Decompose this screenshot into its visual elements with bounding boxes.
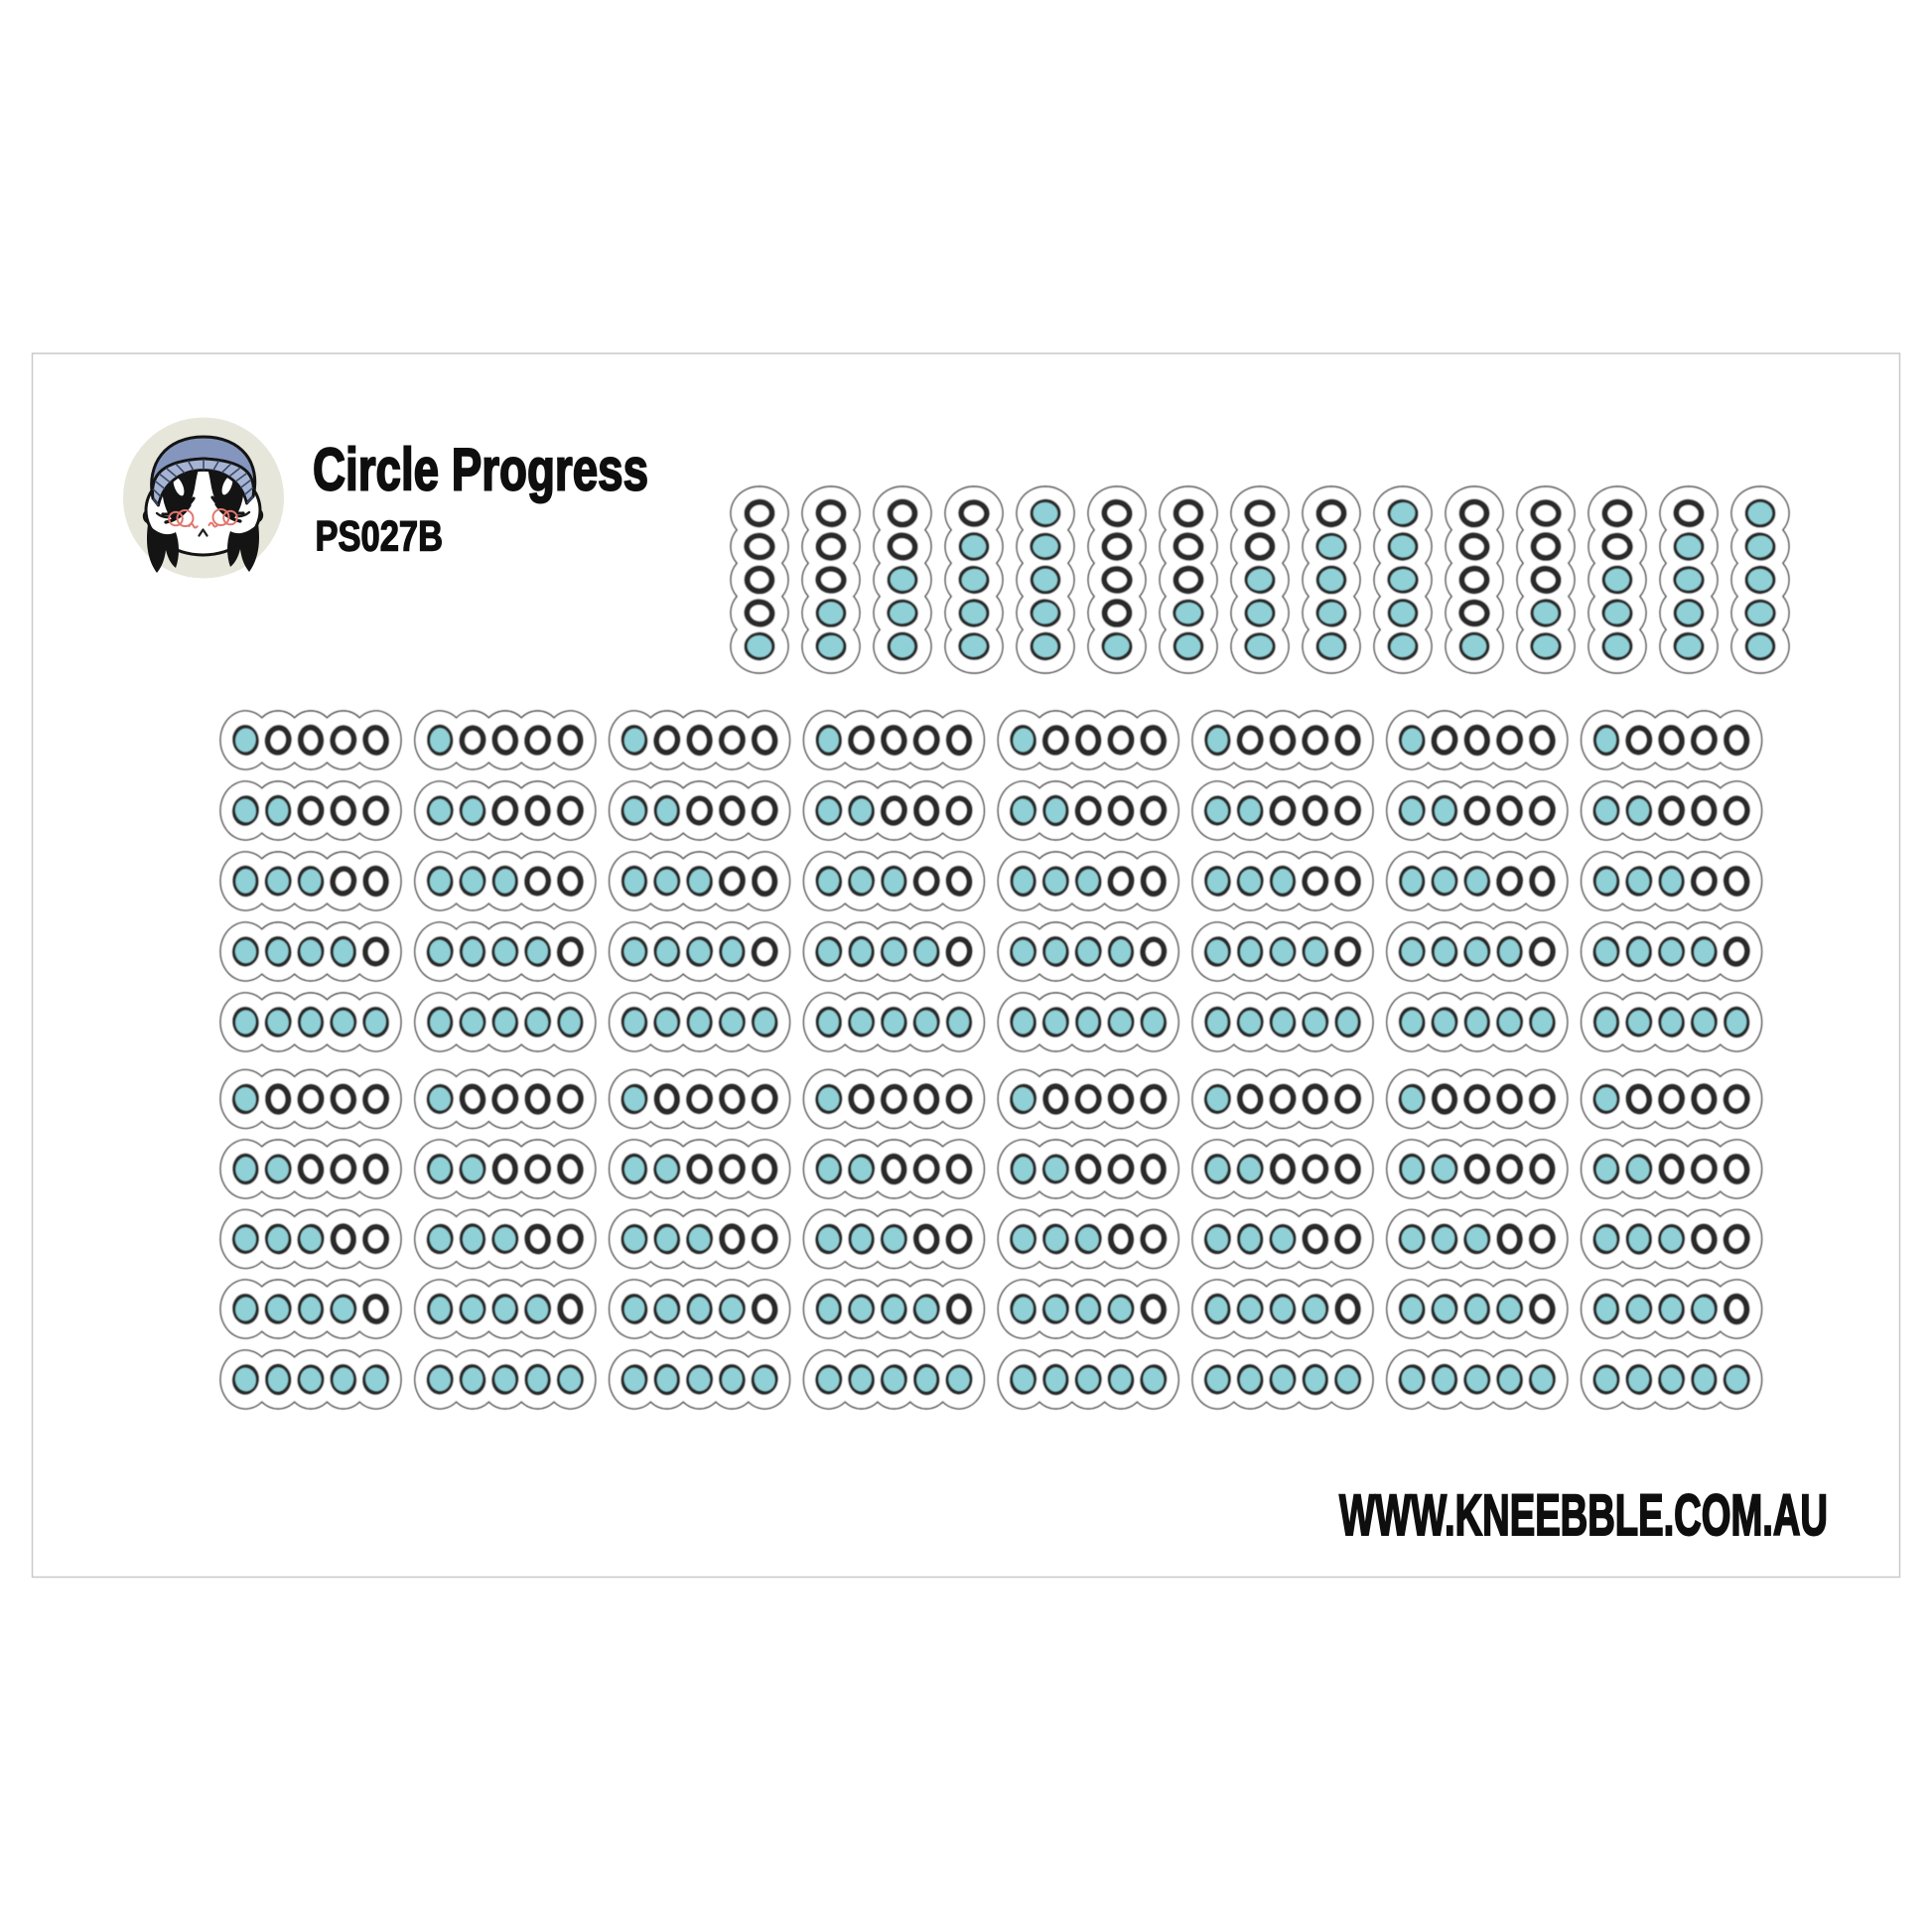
svg-text:Circle Progress: Circle Progress bbox=[313, 437, 648, 503]
svg-text:PS027B: PS027B bbox=[316, 513, 444, 561]
svg-text:WWW.KNEEBBLE.COM.AU: WWW.KNEEBBLE.COM.AU bbox=[1339, 1483, 1828, 1548]
